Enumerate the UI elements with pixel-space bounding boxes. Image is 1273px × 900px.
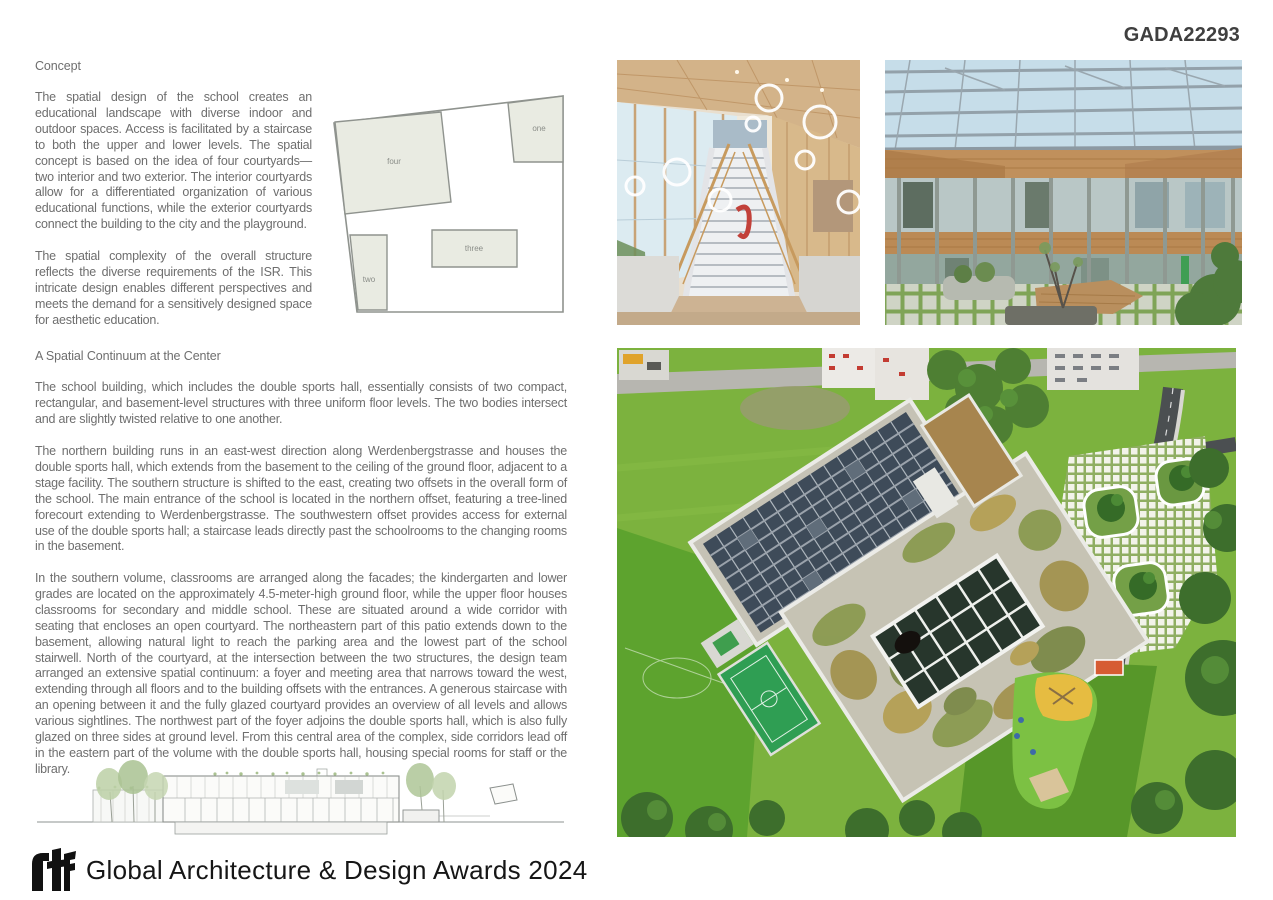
building-section-drawing [35,760,566,846]
label-four: four [387,157,401,166]
continuum-paragraph-3: In the southern volume, classrooms are a… [35,571,567,778]
label-one: one [532,124,546,133]
award-title: Global Architecture & Design Awards 2024 [86,855,587,886]
concept-paragraph-1: The spatial design of the school creates… [35,90,312,233]
photo-aerial-view [617,348,1236,837]
photo-foyer-staircase [617,60,860,325]
label-two: two [363,275,376,284]
submission-code: GADA22293 [1020,24,1240,47]
label-three: three [465,244,484,253]
continuum-paragraph-1: The school building, which includes the … [35,380,567,428]
footer: Global Architecture & Design Awards 2024 [30,848,587,892]
continuum-heading: A Spatial Continuum at the Center [35,349,435,363]
concept-paragraph-2: The spatial complexity of the overall st… [35,249,312,329]
continuum-paragraph-2: The northern building runs in an east-we… [35,444,567,555]
concept-heading: Concept [35,59,315,73]
photo-interior-courtyard [885,60,1242,325]
courtyard-concept-diagram: four one three two [330,90,568,318]
award-board-page: GADA22293 Concept The spatial design of … [0,0,1273,900]
rtf-logo-icon [30,848,76,892]
